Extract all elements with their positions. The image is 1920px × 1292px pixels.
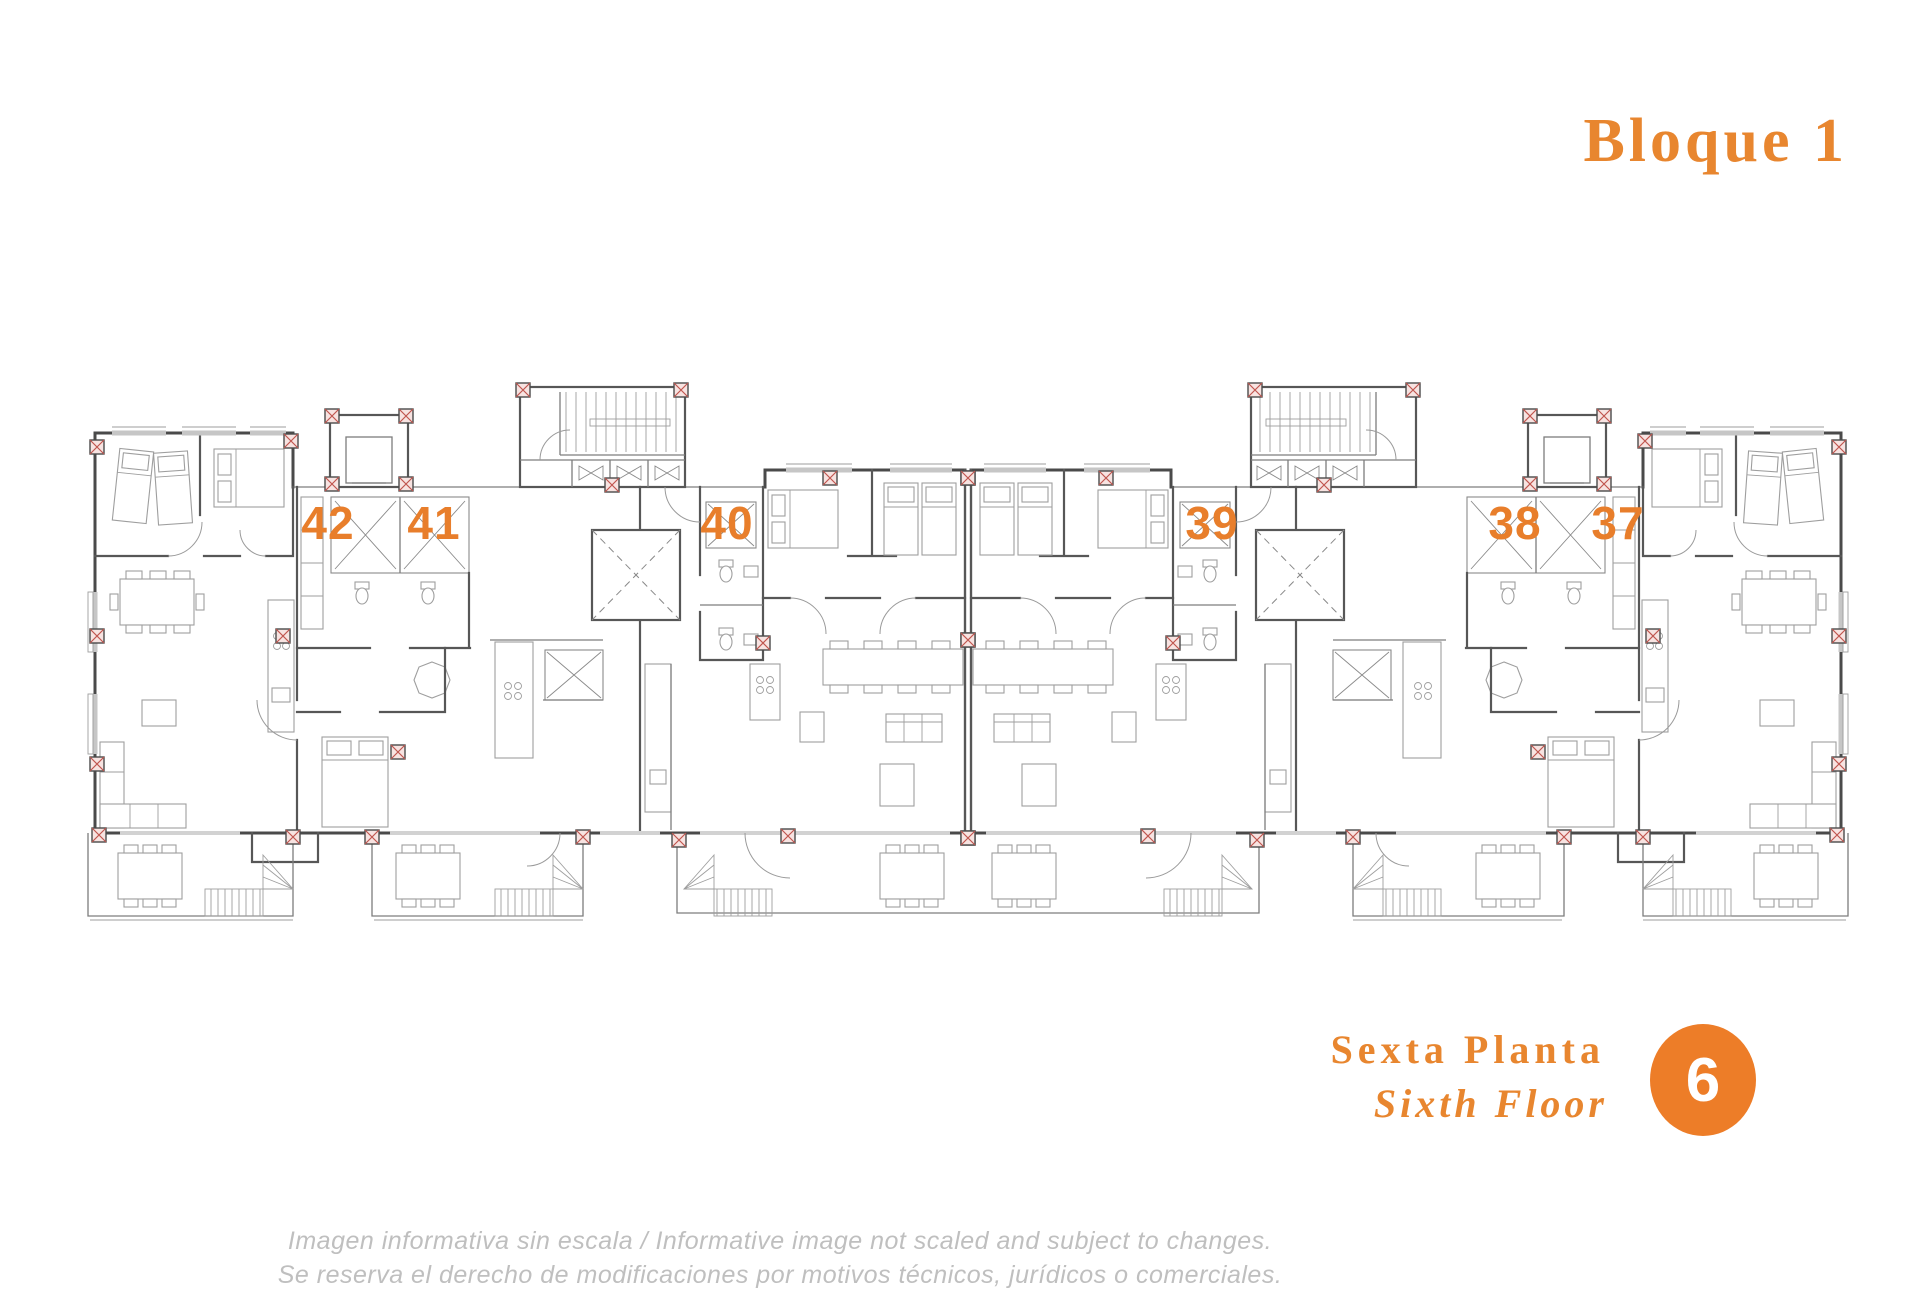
building-left-wing xyxy=(88,383,975,920)
unit-label-37: 37 xyxy=(1591,496,1644,550)
disclaimer-line-1: Imagen informativa sin escala / Informat… xyxy=(260,1224,1300,1258)
page-title: Bloque 1 xyxy=(1583,106,1848,177)
disclaimer-line-2: Se reserva el derecho de modificaciones … xyxy=(260,1258,1300,1292)
disclaimer: Imagen informativa sin escala / Informat… xyxy=(260,1224,1300,1292)
floor-number: 6 xyxy=(1686,1045,1720,1116)
floor-number-badge: 6 xyxy=(1650,1024,1756,1136)
unit-label-40: 40 xyxy=(700,496,753,550)
unit-label-38: 38 xyxy=(1488,496,1541,550)
floor-plan-drawing xyxy=(0,0,1920,1280)
unit-label-39: 39 xyxy=(1185,496,1238,550)
floor-name-english: Sixth Floor xyxy=(1374,1080,1608,1127)
building-right-wing xyxy=(961,383,1848,920)
unit-label-41: 41 xyxy=(407,496,460,550)
floor-plan-page: { "header": { "title": "Bloque 1" }, "pl… xyxy=(0,0,1920,1280)
floor-name-spanish: Sexta Planta xyxy=(1331,1026,1605,1073)
unit-label-42: 42 xyxy=(301,496,354,550)
